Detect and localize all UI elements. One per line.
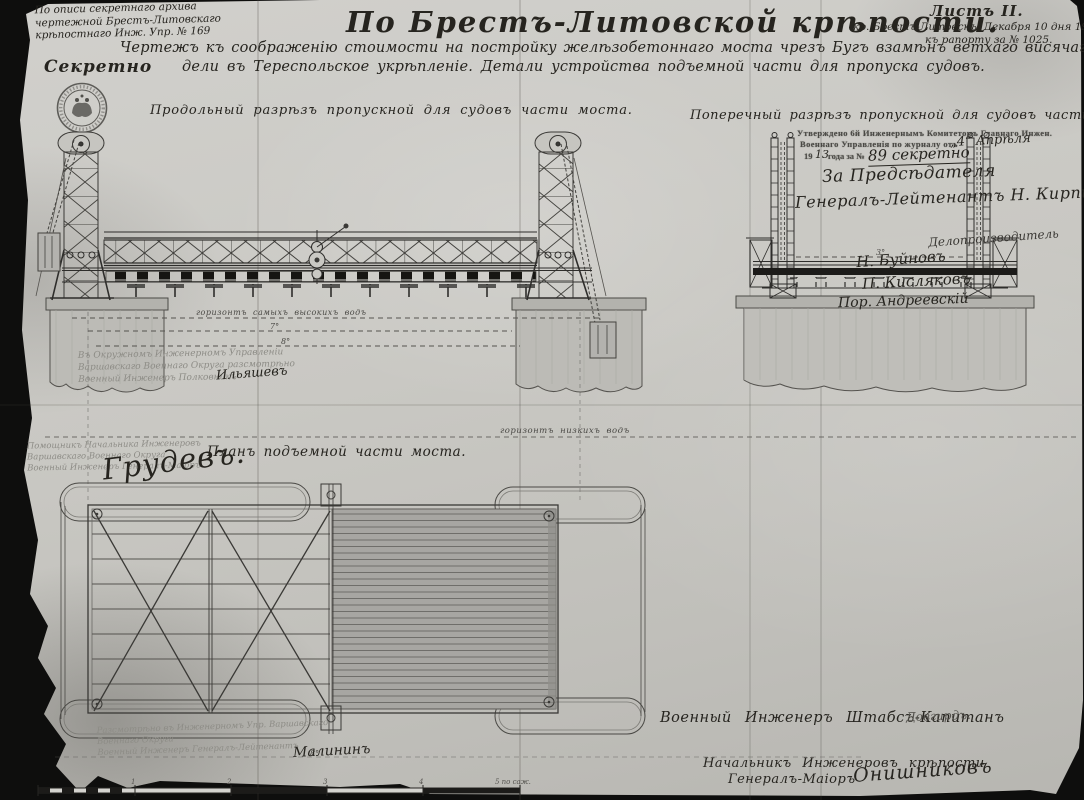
sheet-number: Листъ II. (930, 2, 1024, 20)
approval-stamp-number-printed: года за № (828, 151, 865, 161)
lift-span-truss (62, 232, 592, 297)
right-pier (512, 298, 646, 392)
left-lift-tower (36, 132, 114, 300)
water-mark-8: 8° (281, 337, 290, 346)
fortress-seal-stamp (58, 84, 107, 133)
approval-stamp-year-handwritten: 13 (815, 148, 829, 161)
archive-note: По описи секретнаго архива чертежной Бре… (35, 0, 222, 42)
chief-rank-label: Генералъ-Маіоръ (728, 772, 856, 787)
engineer-captain-signature: Довгирдъ. (906, 708, 971, 724)
scale-label-2: 2 (227, 778, 231, 786)
scale-label-4: 4 (419, 778, 423, 786)
archival-bridge-drawing: По описи секретнаго архива чертежной Бре… (0, 0, 1084, 800)
transverse-section-label: Поперечный разрѣзъ пропускной для судовъ… (690, 108, 1084, 123)
scale-label-5: 5 по саж. (495, 778, 531, 786)
approval-stamp-year-printed: 19 (804, 151, 813, 161)
place-date: кр. Брестъ-Литовскъ. Декабря 10 дня 1911… (853, 21, 1084, 33)
scale-label-3: 3 (323, 778, 327, 786)
scale-label-1: 1 (131, 778, 135, 786)
plan-view-drawing (60, 483, 645, 738)
high-water-label: горизонтъ самыхъ высокихъ водъ (196, 308, 367, 317)
right-lift-tower (525, 132, 606, 300)
scale-bar (38, 785, 520, 796)
plan-span-frame (88, 505, 558, 713)
secret-label: Секретно (44, 57, 152, 77)
low-water-label: горизонтъ низкихъ водъ (500, 426, 630, 436)
transverse-pier (736, 296, 1034, 392)
report-number: къ рапорту за № 1025. (925, 34, 1052, 46)
water-mark-3: 3° (876, 248, 885, 257)
water-mark-7: 7° (270, 322, 279, 331)
longitudinal-section-label: Продольный разрѣзъ пропускной для судовъ… (150, 103, 633, 118)
subtitle-line2: дели въ Тереспольское укрѣпленіе. Детали… (182, 59, 985, 75)
